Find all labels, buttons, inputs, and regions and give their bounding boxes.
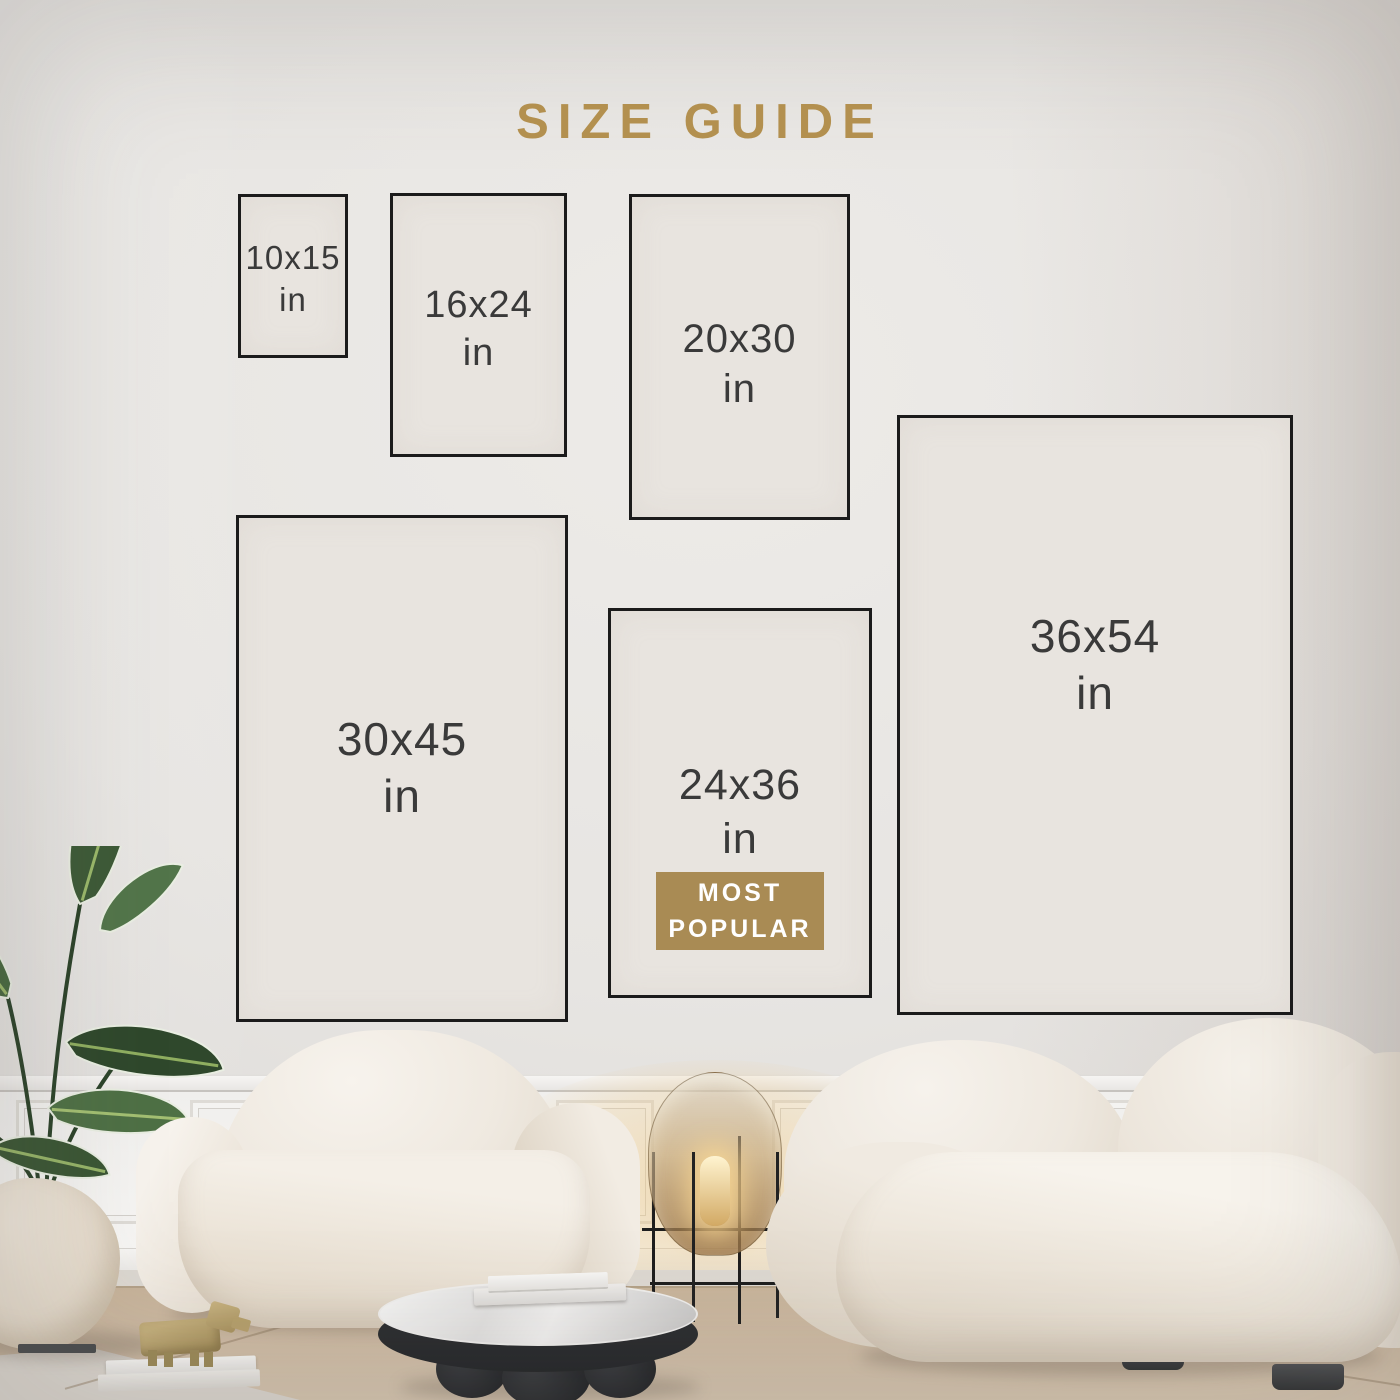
size-unit-label: in — [1076, 668, 1114, 720]
size-dimensions-label: 24x36 — [679, 761, 801, 809]
size-unit-label: in — [383, 771, 421, 823]
dog-figurine-leg — [190, 1350, 199, 1366]
most-popular-badge: MOST POPULAR — [656, 872, 824, 950]
size-box-20x30: 20x30 in — [629, 194, 850, 520]
size-dimensions-label: 36x54 — [1030, 611, 1160, 663]
size-box-10x15: 10x15 in — [238, 194, 348, 358]
sofa — [770, 1012, 1400, 1400]
dog-figurine-leg — [148, 1350, 157, 1366]
size-guide-poster-mockup: SIZE GUIDE 10x15 in 16x24 in 20x30 in 30… — [0, 0, 1400, 1400]
size-dimensions-label: 30x45 — [337, 714, 467, 766]
sofa-foot — [1272, 1364, 1344, 1390]
dog-figurine-display — [96, 1306, 266, 1400]
size-unit-label: in — [463, 332, 495, 375]
size-unit-label: in — [279, 282, 307, 319]
size-unit-label: in — [723, 367, 756, 412]
badge-line: MOST — [698, 875, 782, 911]
sofa-seat — [836, 1152, 1400, 1362]
dog-figurine-leg — [204, 1352, 213, 1367]
lamp-bulb — [700, 1156, 730, 1226]
size-box-24x36: 24x36 in MOST POPULAR — [608, 608, 872, 998]
dog-figurine-leg — [164, 1352, 173, 1367]
coffee-table — [378, 1278, 702, 1400]
page-title: SIZE GUIDE — [0, 94, 1400, 150]
badge-line: POPULAR — [668, 911, 811, 947]
size-box-30x45: 30x45 in — [236, 515, 568, 1022]
size-box-16x24: 16x24 in — [390, 193, 567, 457]
pouf-leg — [18, 1344, 96, 1353]
size-unit-label: in — [722, 815, 757, 863]
size-box-36x54: 36x54 in — [897, 415, 1293, 1015]
size-dimensions-label: 10x15 — [246, 240, 341, 277]
size-dimensions-label: 20x30 — [683, 317, 797, 362]
size-dimensions-label: 16x24 — [424, 284, 533, 327]
